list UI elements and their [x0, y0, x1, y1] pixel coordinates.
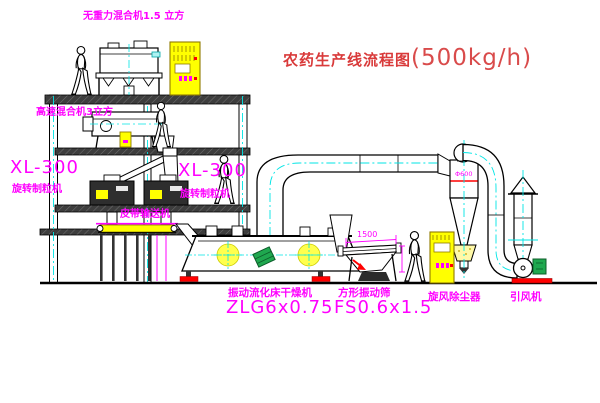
support-posts: [100, 235, 151, 281]
label-cyclone-dimension: Φ600: [455, 171, 473, 178]
dryer-foot-left: [180, 277, 198, 282]
label-granulator-left-model: XL-300: [10, 159, 79, 177]
mixer-port: [152, 52, 160, 57]
roof-slab: [45, 95, 250, 104]
cyclone-inlet-reducer: [438, 154, 450, 176]
label-granulator-mid-name: 旋转制粒机: [180, 190, 230, 200]
label-gravity-mixer: 无重力混合机1.5 立方: [83, 12, 184, 22]
label-belt-conveyor: 皮带输送机: [120, 210, 170, 220]
induced-draft-fan: [512, 259, 552, 284]
label-sieve-dimension: 1500: [357, 231, 377, 239]
fan-motor: [533, 259, 546, 274]
person-roof: [71, 47, 92, 95]
mixer-control-box: [120, 132, 131, 147]
drawing-title: 农药生产线流程图(500kg/h): [283, 47, 532, 70]
label-cyclone: 旋风除尘器: [428, 292, 481, 303]
control-cabinet-top: [170, 42, 200, 95]
title-name: 农药生产线流程图: [283, 51, 411, 69]
label-dryer-model: ZLG6x0.75: [226, 299, 334, 317]
person-ground: [404, 232, 425, 282]
label-high-speed-mixer: 高速混合机3立方: [36, 108, 113, 118]
dryer-foot-right: [312, 277, 330, 282]
label-granulator-mid-model: XL-300: [178, 162, 247, 180]
title-capacity: (500kg/h): [411, 45, 532, 71]
label-sieve-model: FS0.6x1.5: [334, 299, 432, 317]
gravity-mixer: [96, 41, 162, 95]
exhaust-duct: [257, 155, 448, 236]
label-granulator-left-name: 旋转制粒机: [12, 185, 62, 195]
cad-drawing-canvas: 无重力混合机1.5 立方 农药生产线流程图(500kg/h) 高速混合机3立方 …: [0, 0, 600, 403]
floor2-slab: [55, 148, 250, 155]
sieve-base: [358, 272, 390, 281]
label-fan: 引风机: [510, 292, 542, 303]
fan-base: [512, 279, 552, 284]
control-cabinet-right: [430, 232, 454, 283]
